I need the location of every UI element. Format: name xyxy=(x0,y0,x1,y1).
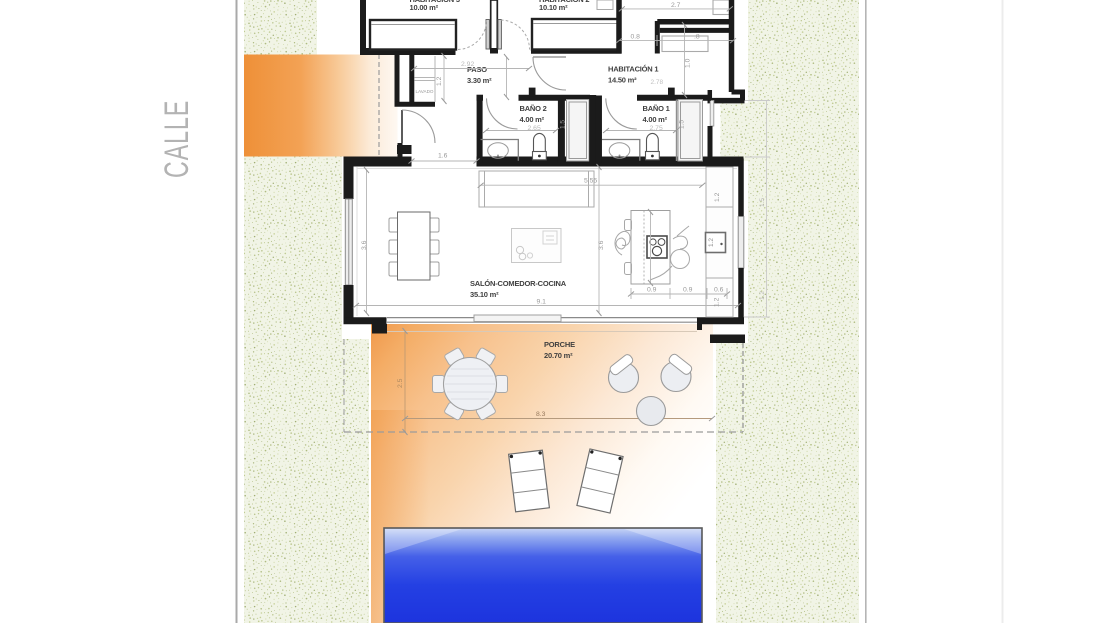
svg-text:1.6: 1.6 xyxy=(438,153,448,160)
svg-text:3.6: 3.6 xyxy=(598,240,605,250)
svg-text:HABITACIÓN 1: HABITACIÓN 1 xyxy=(608,65,658,74)
svg-text:2.5: 2.5 xyxy=(397,378,404,388)
svg-text:.8: .8 xyxy=(694,34,700,41)
svg-text:0.9: 0.9 xyxy=(683,287,693,294)
svg-text:0.8: 0.8 xyxy=(631,34,641,41)
svg-text:9.1: 9.1 xyxy=(537,299,547,306)
svg-text:5.55: 5.55 xyxy=(584,178,597,185)
svg-text:2.7: 2.7 xyxy=(671,2,681,9)
svg-text:BAÑO 1: BAÑO 1 xyxy=(643,104,670,113)
svg-text:1.5: 1.5 xyxy=(679,120,686,129)
svg-text:14.50 m²: 14.50 m² xyxy=(608,76,637,85)
svg-text:PORCHE: PORCHE xyxy=(544,340,575,349)
svg-text:0.9: 0.9 xyxy=(647,287,657,294)
svg-text:1.2: 1.2 xyxy=(436,76,443,86)
svg-text:10.10 m²: 10.10 m² xyxy=(539,3,568,12)
svg-text:0.6: 0.6 xyxy=(714,287,724,294)
svg-text:2.78: 2.78 xyxy=(651,79,664,86)
svg-text:LAVADO: LAVADO xyxy=(416,89,434,94)
svg-text:BAÑO 2: BAÑO 2 xyxy=(520,104,547,113)
svg-text:1.5: 1.5 xyxy=(759,198,766,207)
svg-text:3.30 m²: 3.30 m² xyxy=(467,76,492,85)
svg-text:2.92: 2.92 xyxy=(461,61,474,68)
svg-text:4.00 m²: 4.00 m² xyxy=(643,115,668,124)
svg-text:4.00 m²: 4.00 m² xyxy=(520,115,545,124)
svg-text:10.00 m²: 10.00 m² xyxy=(410,3,439,12)
svg-text:1.2: 1.2 xyxy=(708,238,715,247)
svg-text:3.6: 3.6 xyxy=(361,240,368,250)
svg-text:1.0: 1.0 xyxy=(685,58,692,68)
svg-text:SALÓN-COMEDOR-COCINA: SALÓN-COMEDOR-COCINA xyxy=(470,279,567,288)
svg-text:20.70 m²: 20.70 m² xyxy=(544,351,573,360)
svg-text:35.10 m²: 35.10 m² xyxy=(470,290,499,299)
svg-text:8.3: 8.3 xyxy=(536,411,546,418)
svg-text:1.2: 1.2 xyxy=(714,192,721,202)
svg-text:1.2: 1.2 xyxy=(714,297,721,307)
svg-text:1.5: 1.5 xyxy=(560,120,567,129)
svg-text:CALLE: CALLE xyxy=(159,100,196,178)
svg-text:1.2: 1.2 xyxy=(759,291,766,300)
